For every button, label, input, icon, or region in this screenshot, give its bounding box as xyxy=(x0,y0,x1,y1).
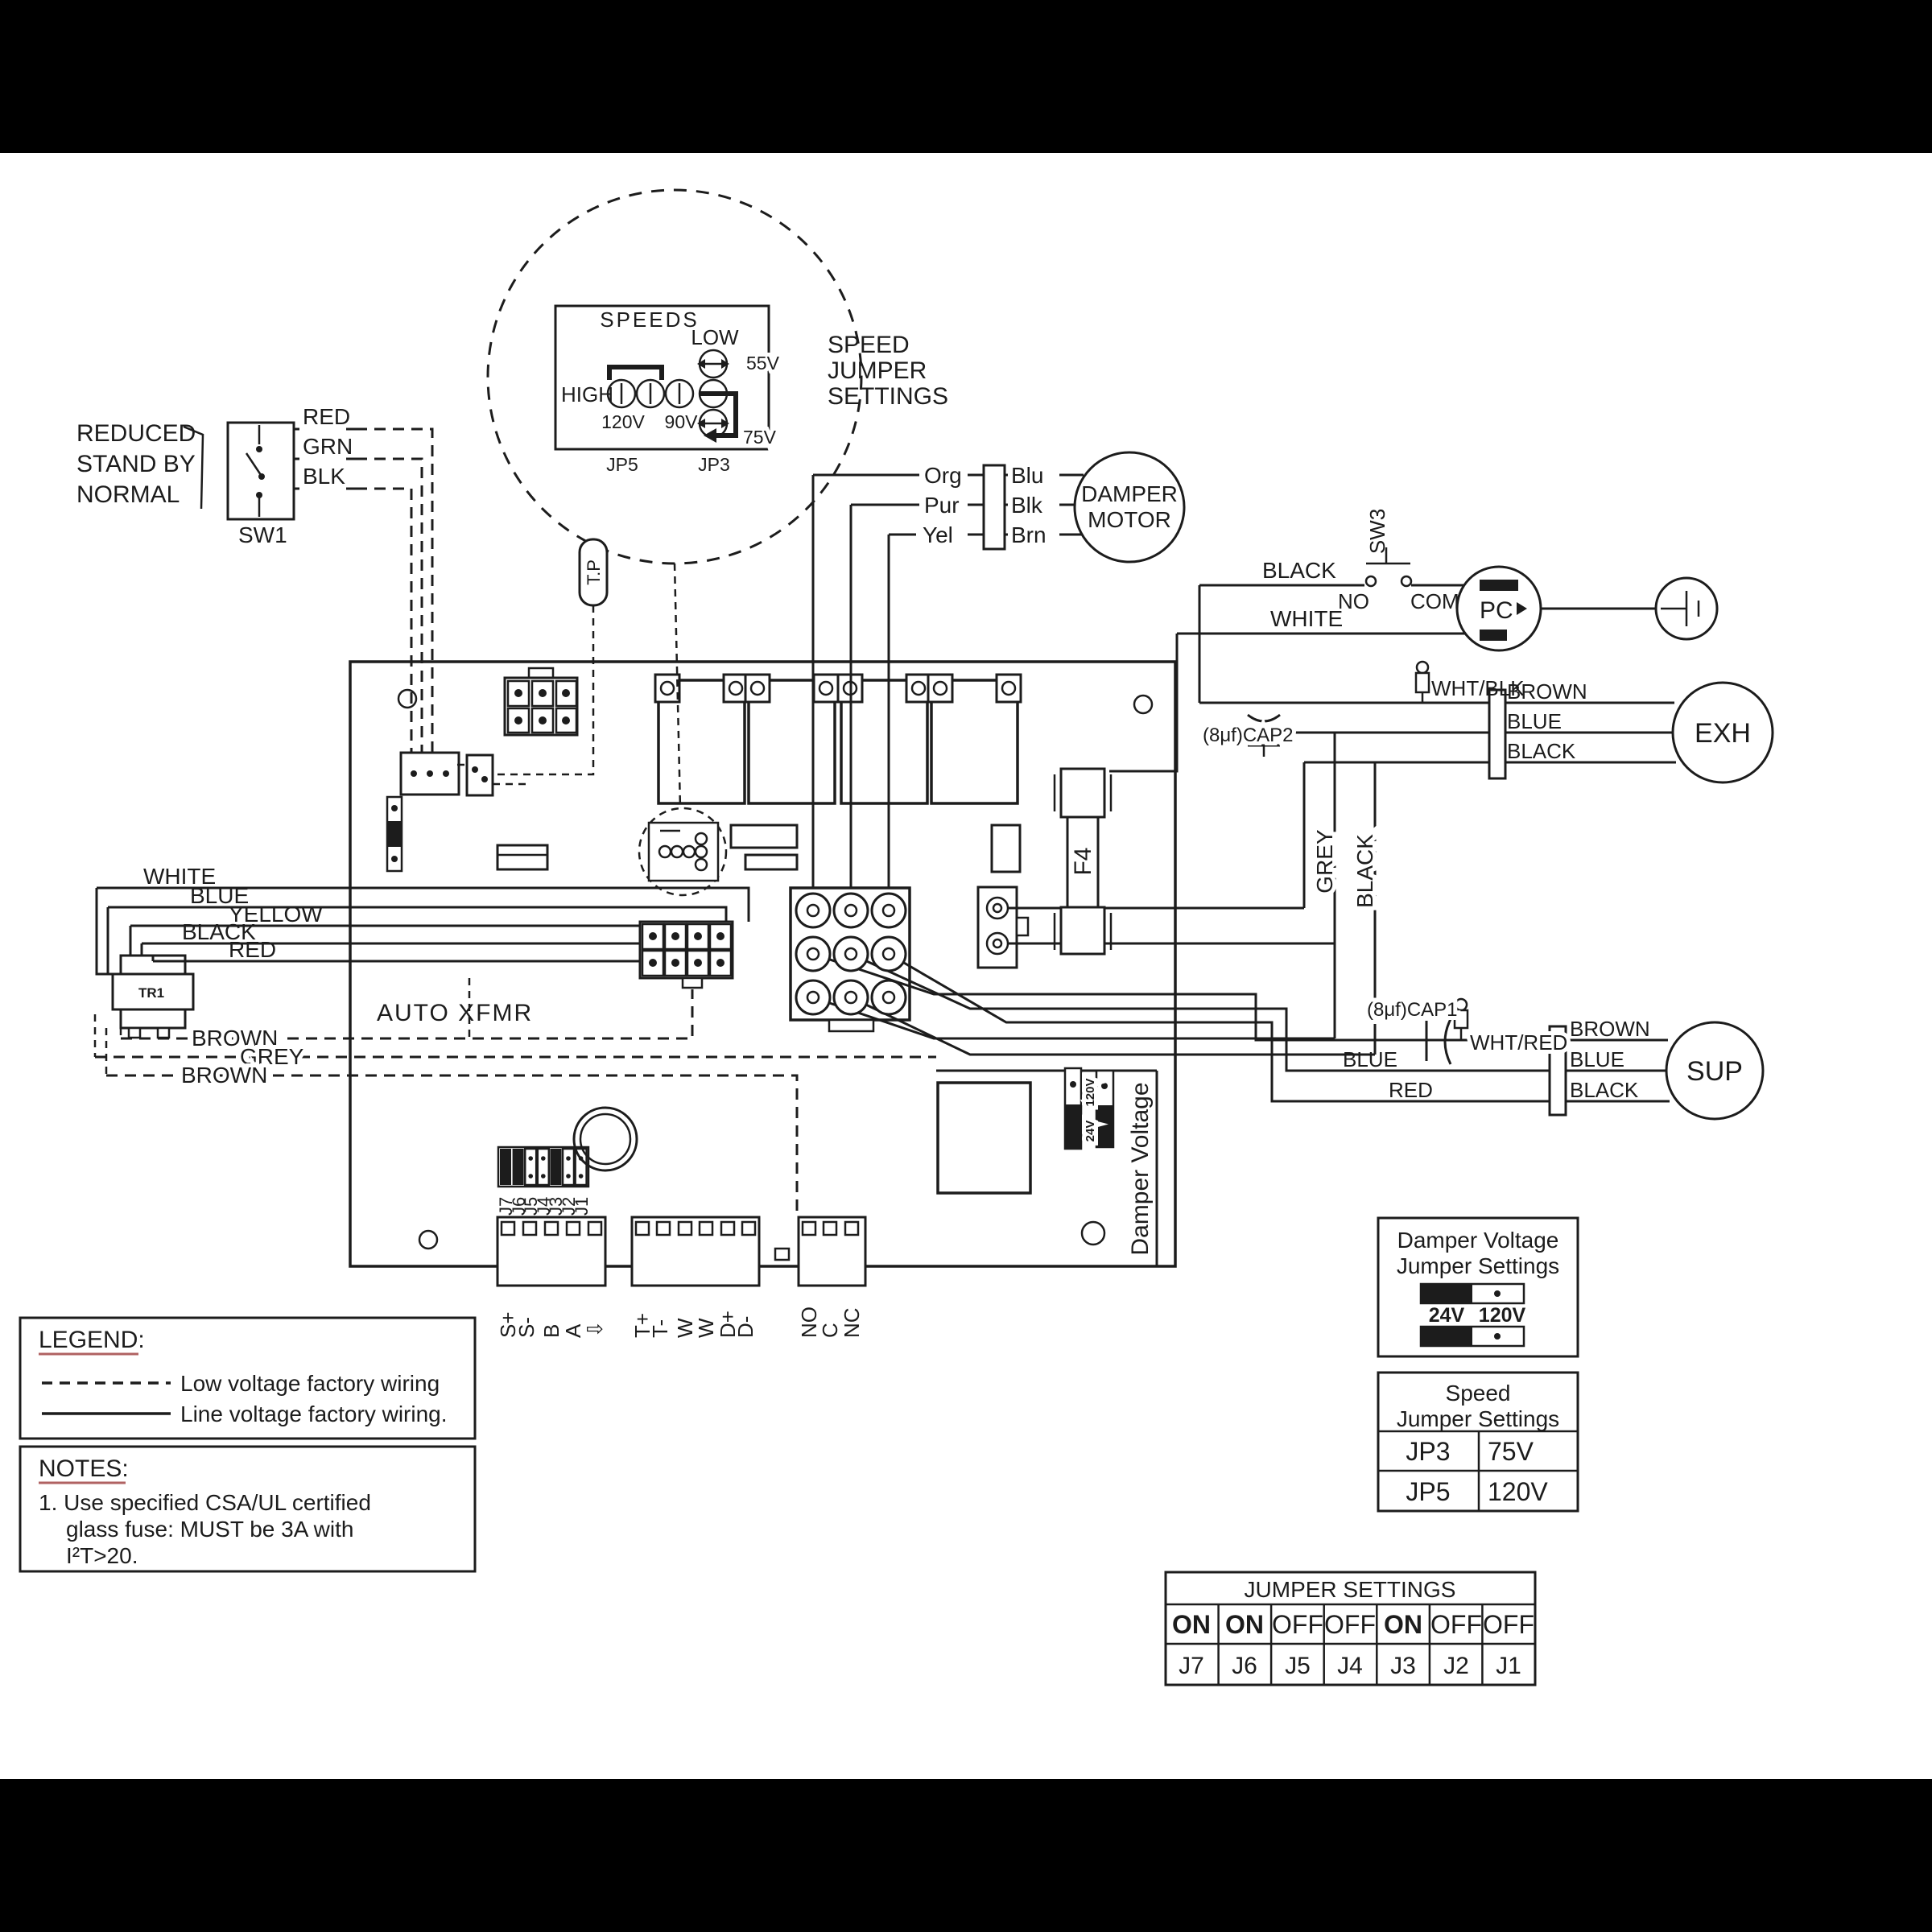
sw3-com-label: COM xyxy=(1410,589,1459,613)
legend-title: LEGEND: xyxy=(39,1327,145,1353)
mounting-hole xyxy=(1082,1222,1104,1245)
jumper-table-title: JUMPER SETTINGS xyxy=(1245,1577,1456,1602)
cap1-label: (8μf)CAP1 xyxy=(1367,999,1458,1021)
terminal-c: C xyxy=(818,1323,842,1338)
auto-xfmr-connector xyxy=(640,922,733,988)
terminal-t-minus: T- xyxy=(648,1319,672,1338)
sup-motor-label: SUP xyxy=(1686,1056,1743,1087)
notes-line1: 1. Use specified CSA/UL certified xyxy=(39,1490,371,1515)
state-j7: ON xyxy=(1172,1610,1211,1639)
sw1-wire-red: RED xyxy=(303,404,350,429)
sw1-caption-line2: STAND BY xyxy=(76,451,196,477)
grey-wire-label: GREY xyxy=(1312,829,1337,894)
component xyxy=(731,825,797,848)
jp5-label: JP5 xyxy=(606,454,638,475)
six-pin-connector xyxy=(505,668,577,735)
speed-box-jp5: JP5 xyxy=(1406,1477,1450,1506)
damper-voltage-vertical-label: Damper Voltage xyxy=(1127,1082,1154,1255)
component xyxy=(497,845,547,869)
sw3-black-label: BLACK xyxy=(1262,558,1336,583)
notes-line2: glass fuse: MUST be 3A with xyxy=(66,1517,353,1542)
sup-black-label: BLACK xyxy=(1570,1078,1639,1102)
speed-box-75v: 75V xyxy=(1488,1437,1534,1466)
state-j6: ON xyxy=(1225,1610,1264,1639)
name-j2: J2 xyxy=(1443,1653,1469,1679)
notes-title: NOTES: xyxy=(39,1455,129,1482)
high-label: HIGH xyxy=(561,382,613,407)
state-j5: OFF xyxy=(1272,1610,1323,1639)
speed-box-title2: Jumper Settings xyxy=(1397,1406,1559,1431)
dv-box-24v: 24V xyxy=(1429,1304,1465,1327)
j1-label: J1 xyxy=(572,1197,592,1216)
name-j7: J7 xyxy=(1179,1653,1204,1679)
name-j4: J4 xyxy=(1337,1653,1363,1679)
black-wire-label: BLACK xyxy=(1352,834,1377,908)
sup-left-red-label: RED xyxy=(1389,1078,1433,1102)
damper-motor-label1: DAMPER xyxy=(1081,481,1178,506)
sw1-label: SW1 xyxy=(238,522,287,547)
speed-callout-1: SPEED xyxy=(828,332,910,358)
tr1-label: TR1 xyxy=(138,985,164,1001)
wire-org: Org xyxy=(924,463,962,488)
speed-box-jp3: JP3 xyxy=(1406,1437,1450,1466)
terminal-arrow: ⇩ xyxy=(583,1320,607,1338)
wiring-diagram: REDUCED STAND BY NORMAL SW1 RED GRN BLK … xyxy=(0,0,1932,1932)
exh-brown-label: BROWN xyxy=(1507,679,1587,704)
name-j5: J5 xyxy=(1285,1653,1311,1679)
speed-callout-2: JUMPER xyxy=(828,357,927,384)
v90-label: 90V xyxy=(665,411,699,432)
cap2-label: (8μf)CAP2 xyxy=(1203,724,1294,746)
name-j6: J6 xyxy=(1232,1653,1257,1679)
state-j1: OFF xyxy=(1483,1610,1534,1639)
v55-label: 55V xyxy=(746,353,780,374)
v75-label: 75V xyxy=(743,427,777,448)
name-j3: J3 xyxy=(1390,1653,1416,1679)
name-j1: J1 xyxy=(1496,1653,1521,1679)
v120-label: 120V xyxy=(601,411,645,432)
speed-box-120v: 120V xyxy=(1488,1477,1548,1506)
mounting-hole xyxy=(398,690,416,708)
speed-box-title1: Speed xyxy=(1446,1381,1511,1406)
onboard-120v-label: 120V xyxy=(1084,1078,1097,1106)
damper-relay xyxy=(938,1083,1030,1193)
sw1-wire-blk: BLK xyxy=(303,464,345,489)
wire-blu: Blu xyxy=(1011,463,1043,488)
sw1-caption-line1: REDUCED xyxy=(76,420,196,447)
component xyxy=(992,825,1020,872)
legend-line-voltage: Line voltage factory wiring. xyxy=(180,1402,448,1426)
state-j4: OFF xyxy=(1324,1610,1376,1639)
tr1-brown2-label: BROWN xyxy=(181,1063,267,1088)
state-j2: OFF xyxy=(1430,1610,1482,1639)
speed-callout-3: SETTINGS xyxy=(828,383,948,410)
exh-motor-label: EXH xyxy=(1695,718,1751,749)
whtred-label: WHT/RED xyxy=(1470,1030,1567,1055)
damper-motor-label2: MOTOR xyxy=(1088,507,1171,532)
dv-box-title2: Jumper Settings xyxy=(1397,1253,1559,1278)
two-pin-connector xyxy=(467,755,493,795)
relay-terminal-block xyxy=(799,1217,865,1286)
dv-box-title1: Damper Voltage xyxy=(1397,1228,1559,1253)
jp3-label: JP3 xyxy=(698,454,730,475)
onboard-24v-label: 24V xyxy=(1084,1121,1097,1142)
j-jumper-labels: J7 J6 J5 J4 J3 J2 J1 xyxy=(496,1197,592,1216)
mounting-hole xyxy=(1134,696,1152,713)
notes-line3: I²T>20. xyxy=(66,1543,138,1568)
jumper-table-states: ON ON OFF OFF ON OFF OFF xyxy=(1172,1610,1534,1639)
terminal-b: B xyxy=(539,1324,563,1338)
wire-brn: Brn xyxy=(1011,522,1046,547)
sw3-no-label: NO xyxy=(1338,589,1369,613)
tp-label: T.P xyxy=(584,559,604,585)
sup-brown-label: BROWN xyxy=(1570,1017,1650,1041)
sup-left-blue-label: BLUE xyxy=(1343,1047,1397,1071)
wire-pur: Pur xyxy=(924,493,960,518)
wire-yel: Yel xyxy=(923,522,953,547)
terminal-w2: W xyxy=(694,1318,718,1338)
speeds-title: SPEEDS xyxy=(600,308,700,332)
terminal-a: A xyxy=(561,1323,585,1338)
sw1-caption-line3: NORMAL xyxy=(76,481,180,508)
wire-blk: Blk xyxy=(1011,493,1043,518)
pc-label: PC xyxy=(1480,597,1513,624)
terminal-nc: NC xyxy=(840,1307,864,1338)
circuit-board xyxy=(350,662,1175,1266)
low-label: LOW xyxy=(691,325,739,349)
mounting-hole xyxy=(419,1231,437,1249)
state-j3: ON xyxy=(1384,1610,1422,1639)
legend-low-voltage: Low voltage factory wiring xyxy=(180,1371,440,1396)
t-terminal-block xyxy=(632,1217,759,1286)
auto-xfmr-label: AUTO XFMR xyxy=(377,1000,533,1026)
exh-blue-label: BLUE xyxy=(1507,709,1562,733)
tr1-red-label: RED xyxy=(229,937,276,962)
sw1-wire-grn: GRN xyxy=(303,434,353,459)
jumper-strip xyxy=(387,797,402,871)
wiring-diagram-page: REDUCED STAND BY NORMAL SW1 RED GRN BLK … xyxy=(0,0,1932,1932)
f4-label: F4 xyxy=(1070,847,1096,875)
sw3-white-label: WHITE xyxy=(1270,606,1343,631)
exh-black-label: BLACK xyxy=(1507,739,1576,763)
sw3-label: SW3 xyxy=(1365,509,1389,554)
component xyxy=(745,855,797,869)
nine-pin-block-pins xyxy=(796,894,906,1014)
damper-motor-connector xyxy=(984,465,1005,549)
terminal-s-minus: S- xyxy=(514,1317,539,1338)
dv-box-120v: 120V xyxy=(1479,1304,1526,1327)
sup-blue-label: BLUE xyxy=(1570,1047,1624,1071)
exh-connector xyxy=(1489,690,1505,778)
terminal-d-minus: D- xyxy=(733,1316,758,1338)
